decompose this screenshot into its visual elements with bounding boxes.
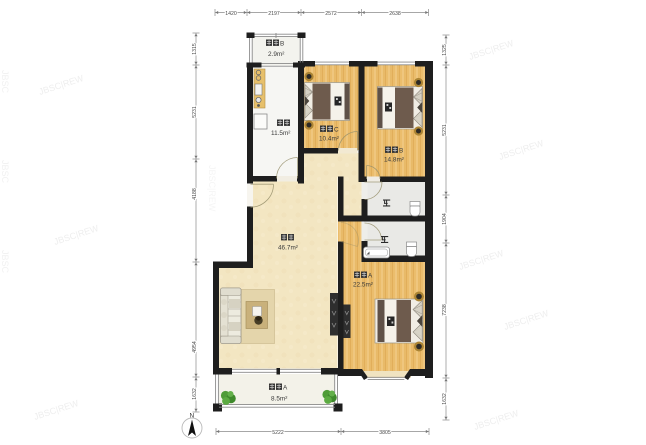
svg-text:JBSC|REW: JBSC|REW bbox=[207, 165, 217, 212]
svg-text:A: A bbox=[283, 384, 288, 391]
svg-text:4188: 4188 bbox=[192, 188, 198, 200]
svg-text:N: N bbox=[190, 413, 195, 420]
svg-text:1632: 1632 bbox=[192, 388, 198, 400]
svg-text:2638: 2638 bbox=[389, 11, 401, 17]
svg-text:22.5m²: 22.5m² bbox=[353, 282, 373, 289]
svg-text:A: A bbox=[368, 272, 373, 279]
svg-text:2572: 2572 bbox=[325, 11, 337, 17]
svg-text:JBSC: JBSC bbox=[0, 250, 10, 274]
svg-text:C: C bbox=[334, 126, 339, 133]
svg-text:B: B bbox=[280, 40, 284, 47]
svg-text:JBSC: JBSC bbox=[0, 160, 10, 184]
svg-text:8.5m²: 8.5m² bbox=[271, 396, 287, 403]
svg-text:7238: 7238 bbox=[442, 304, 448, 316]
svg-text:5222: 5222 bbox=[272, 430, 284, 436]
svg-text:2.9m²: 2.9m² bbox=[268, 51, 284, 58]
svg-text:46.7m²: 46.7m² bbox=[278, 245, 298, 252]
svg-text:1315: 1315 bbox=[192, 43, 198, 55]
svg-text:5231: 5231 bbox=[192, 106, 198, 118]
svg-text:4954: 4954 bbox=[192, 341, 198, 353]
svg-text:1325: 1325 bbox=[442, 44, 448, 56]
svg-text:1904: 1904 bbox=[442, 213, 448, 225]
svg-text:2197: 2197 bbox=[268, 11, 280, 17]
svg-text:1420: 1420 bbox=[225, 11, 237, 17]
svg-text:JBSC: JBSC bbox=[0, 70, 10, 94]
svg-text:B: B bbox=[399, 147, 403, 154]
svg-text:14.8m²: 14.8m² bbox=[384, 157, 404, 164]
svg-text:5231: 5231 bbox=[442, 124, 448, 136]
svg-text:10.4m²: 10.4m² bbox=[319, 136, 339, 143]
svg-text:3805: 3805 bbox=[379, 430, 391, 436]
svg-text:1632: 1632 bbox=[442, 393, 448, 405]
svg-text:11.5m²: 11.5m² bbox=[271, 130, 290, 137]
